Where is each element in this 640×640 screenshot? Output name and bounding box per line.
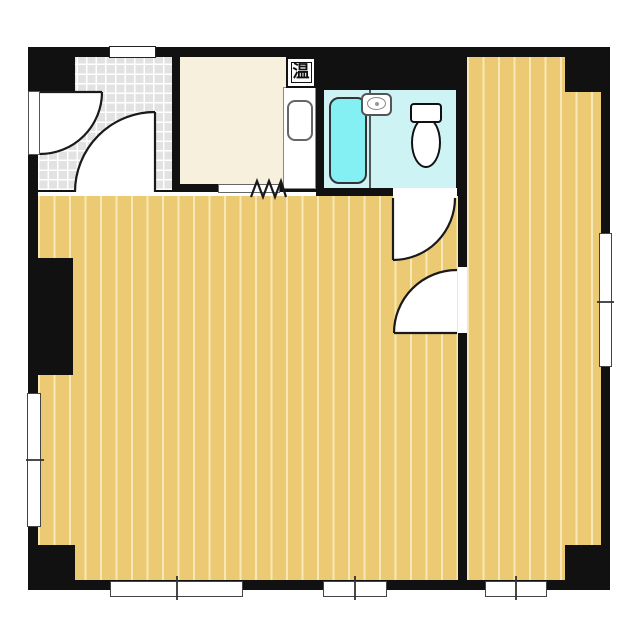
wall-block-mid-left bbox=[38, 258, 73, 375]
window-left-wall bbox=[27, 393, 41, 527]
entry-door-opening bbox=[28, 91, 40, 155]
wall-block-bottom-left bbox=[38, 545, 75, 590]
window-bottom-main-1 bbox=[110, 581, 243, 597]
wall-block-top-left bbox=[28, 47, 75, 92]
kitchen-boundary-opening bbox=[218, 184, 280, 193]
kitchen-sink bbox=[287, 100, 313, 141]
floor-plan: 温 bbox=[0, 0, 640, 640]
entrance-main-door-opening bbox=[75, 189, 155, 196]
wall-block-top-right bbox=[565, 47, 601, 92]
partition-door-opening bbox=[458, 267, 467, 333]
main-room-floor bbox=[38, 196, 458, 580]
water-heater-label: 温 bbox=[291, 62, 312, 84]
window-bottom-main-2 bbox=[323, 581, 387, 597]
toilet-tank bbox=[410, 103, 442, 123]
wash-basin-faucet-dot bbox=[375, 102, 379, 106]
window-top-entrance bbox=[109, 46, 156, 58]
window-right-wall bbox=[599, 233, 612, 367]
water-heater-box: 温 bbox=[286, 57, 316, 88]
wall-block-bottom-right bbox=[565, 545, 601, 590]
bathroom-door-opening bbox=[393, 188, 457, 198]
toilet-bowl bbox=[411, 117, 441, 168]
window-bottom-right-room bbox=[485, 581, 547, 597]
kitchen-bottom-wall-left bbox=[180, 184, 218, 192]
right-room-floor bbox=[467, 57, 601, 580]
wash-basin bbox=[361, 93, 392, 116]
